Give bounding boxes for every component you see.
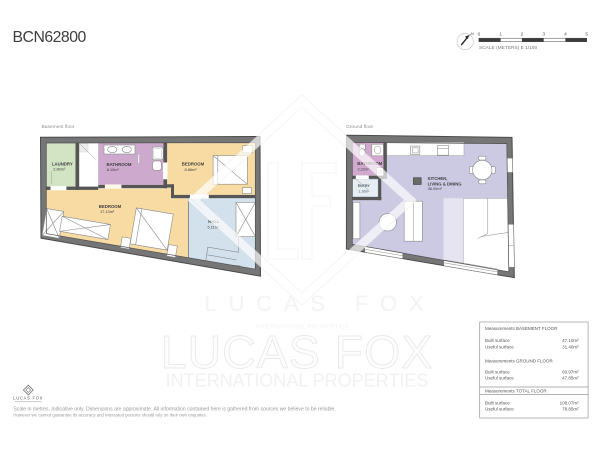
svg-text:Built surface: Built surface bbox=[485, 400, 510, 405]
svg-text:Measurements GROUND FLOOR: Measurements GROUND FLOOR bbox=[485, 359, 554, 364]
svg-text:Built surface: Built surface bbox=[485, 369, 510, 374]
svg-text:38.00m²: 38.00m² bbox=[428, 186, 443, 191]
svg-text:BCN62800: BCN62800 bbox=[13, 29, 87, 46]
svg-text:8.10m²: 8.10m² bbox=[107, 167, 120, 172]
svg-text:1: 1 bbox=[499, 31, 502, 37]
svg-text:1.16m²: 1.16m² bbox=[358, 189, 370, 193]
svg-text:Basement floor: Basement floor bbox=[42, 124, 75, 130]
svg-text:BEDROOM: BEDROOM bbox=[99, 204, 122, 209]
svg-text:BEDROOM: BEDROOM bbox=[182, 161, 205, 166]
svg-text:47.10m²: 47.10m² bbox=[562, 338, 579, 343]
svg-text:SCALE (METERS) E 1/100: SCALE (METERS) E 1/100 bbox=[479, 45, 537, 51]
svg-text:31.40m²: 31.40m² bbox=[562, 344, 579, 349]
svg-text:8.86m²: 8.86m² bbox=[185, 167, 198, 172]
svg-text:2: 2 bbox=[521, 31, 524, 37]
svg-text:2.80m²: 2.80m² bbox=[53, 166, 66, 171]
svg-text:60.97m²: 60.97m² bbox=[562, 369, 579, 374]
svg-text:5: 5 bbox=[585, 31, 588, 37]
svg-text:Ground floor: Ground floor bbox=[346, 124, 374, 130]
svg-text:Measurements TOTAL FLOOR: Measurements TOTAL FLOOR bbox=[485, 389, 547, 394]
svg-text:108.07m²: 108.07m² bbox=[560, 400, 580, 405]
svg-text:N: N bbox=[471, 32, 474, 36]
svg-text:47.85m²: 47.85m² bbox=[562, 376, 579, 381]
svg-text:KITCHEN,: KITCHEN, bbox=[428, 176, 448, 181]
svg-text:Built surface: Built surface bbox=[485, 338, 510, 343]
svg-text:0: 0 bbox=[478, 31, 481, 37]
svg-text:Useful surface: Useful surface bbox=[485, 344, 514, 349]
svg-text:Measurements BASEMENT FLOOR: Measurements BASEMENT FLOOR bbox=[485, 326, 558, 331]
svg-text:However we cannot guarantee it: However we cannot guarantee its accuracy… bbox=[13, 413, 206, 418]
svg-text:17.13m²: 17.13m² bbox=[100, 209, 115, 214]
svg-text:LUCAS FOX: LUCAS FOX bbox=[205, 291, 436, 316]
svg-text:ENTRY: ENTRY bbox=[358, 184, 371, 188]
svg-text:LUCAS FOX: LUCAS FOX bbox=[13, 395, 43, 400]
svg-text:4: 4 bbox=[564, 31, 567, 37]
svg-text:Useful surface: Useful surface bbox=[485, 407, 514, 412]
svg-text:Useful surface: Useful surface bbox=[485, 376, 514, 381]
svg-text:INTERNATIONAL PROPERTIES: INTERNATIONAL PROPERTIES bbox=[166, 371, 429, 391]
svg-text:78.85m²: 78.85m² bbox=[562, 407, 579, 412]
svg-text:3: 3 bbox=[542, 31, 545, 37]
